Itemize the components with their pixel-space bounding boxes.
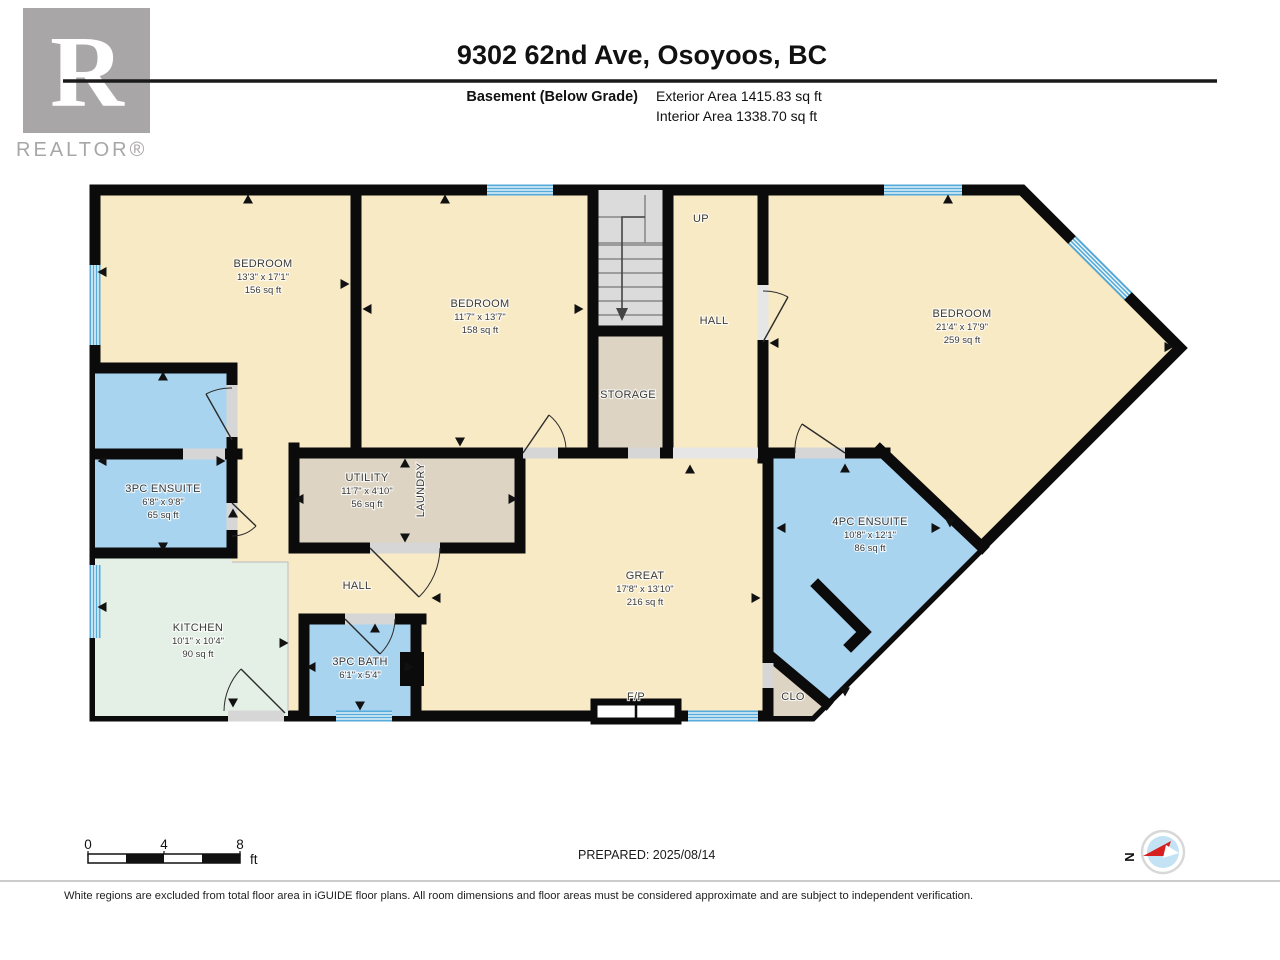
interior-area: Interior Area 1338.70 sq ft — [656, 108, 817, 124]
exterior-area: Exterior Area 1415.83 sq ft — [656, 88, 822, 104]
header: R REALTOR® 9302 62nd Ave, Osoyoos, BC Ba… — [16, 8, 1217, 161]
plan: BEDROOM 13'3" x 17'1" 156 sq ft BEDROOM … — [92, 187, 1180, 722]
closet-door-sill — [763, 663, 774, 688]
page-title: 9302 62nd Ave, Osoyoos, BC — [457, 40, 827, 70]
room-label-laundry: LAUNDRY — [415, 462, 427, 517]
door-sill — [795, 448, 845, 459]
svg-text:10'1" x 10'4": 10'1" x 10'4" — [172, 636, 224, 647]
door-sill — [523, 448, 558, 459]
svg-text:BEDROOM: BEDROOM — [234, 258, 293, 270]
ensuite-upper-room-fill — [95, 368, 232, 454]
svg-text:BEDROOM: BEDROOM — [933, 308, 992, 320]
bath-wall-notch — [400, 652, 424, 686]
scale-bar: 0 4 8 ft — [84, 837, 258, 867]
svg-text:156 sq ft: 156 sq ft — [245, 285, 282, 296]
svg-text:158 sq ft: 158 sq ft — [462, 325, 499, 336]
svg-text:KITCHEN: KITCHEN — [173, 622, 223, 634]
compass-north-label: N — [1122, 852, 1137, 861]
scale-bar-segment — [202, 854, 240, 863]
scale-unit: ft — [250, 852, 258, 867]
compass: N — [1122, 831, 1184, 873]
svg-text:90 sq ft: 90 sq ft — [182, 649, 214, 660]
svg-text:GREAT: GREAT — [626, 570, 665, 582]
svg-text:86 sq ft: 86 sq ft — [854, 543, 886, 554]
door-sill — [227, 385, 238, 437]
scale-tick-0: 0 — [84, 837, 92, 852]
room-label-hall-upper: HALL — [700, 315, 729, 327]
room-label-closet: CLO — [781, 691, 805, 703]
scale-tick-4: 4 — [160, 837, 168, 852]
floor-plan-canvas: R REALTOR® 9302 62nd Ave, Osoyoos, BC Ba… — [0, 0, 1280, 960]
svg-text:11'7" x 4'10": 11'7" x 4'10" — [341, 486, 392, 497]
room-label-hall-lower: HALL — [343, 580, 372, 592]
svg-text:56 sq ft: 56 sq ft — [351, 499, 383, 510]
svg-text:10'8" x 12'1": 10'8" x 12'1" — [844, 530, 896, 541]
svg-text:3PC BATH: 3PC BATH — [332, 656, 387, 668]
room-label-storage: STORAGE — [600, 389, 656, 401]
realtor-wordmark: REALTOR® — [16, 139, 147, 161]
floor-label: Basement (Below Grade) — [466, 89, 638, 105]
svg-text:13'3" x 17'1": 13'3" x 17'1" — [237, 272, 289, 283]
hall-opening-threshold — [673, 448, 758, 459]
fireplace — [594, 702, 678, 721]
room-label-up: UP — [693, 213, 709, 225]
scale-bar-segment — [126, 854, 164, 863]
prepared-date: PREPARED: 2025/08/14 — [578, 848, 715, 862]
footer: 0 4 8 ft PREPARED: 2025/08/14 N White re… — [0, 831, 1280, 902]
door-sill — [228, 711, 284, 722]
svg-text:UTILITY: UTILITY — [345, 472, 388, 484]
room-label-fireplace: F/P — [627, 691, 645, 703]
stairwell-fill — [593, 190, 668, 331]
svg-text:21'4" x 17'9": 21'4" x 17'9" — [936, 322, 988, 333]
svg-text:3PC ENSUITE: 3PC ENSUITE — [125, 483, 200, 495]
svg-text:6'8" x 9'8": 6'8" x 9'8" — [142, 497, 184, 508]
svg-text:11'7" x 13'7": 11'7" x 13'7" — [454, 312, 505, 323]
svg-text:65 sq ft: 65 sq ft — [147, 510, 179, 521]
svg-text:17'8" x 13'10": 17'8" x 13'10" — [616, 584, 673, 595]
svg-text:4PC ENSUITE: 4PC ENSUITE — [832, 516, 907, 528]
realtor-logo-letter: R — [50, 16, 125, 129]
scale-tick-8: 8 — [236, 837, 244, 852]
door-sill — [370, 543, 440, 554]
door-sill — [345, 614, 395, 625]
kitchen-fill — [95, 553, 288, 716]
door-sill — [758, 285, 769, 340]
svg-text:216 sq ft: 216 sq ft — [627, 597, 664, 608]
svg-text:259 sq ft: 259 sq ft — [944, 335, 981, 346]
disclaimer-text: White regions are excluded from total fl… — [64, 890, 973, 902]
svg-text:6'1" x 5'4": 6'1" x 5'4" — [339, 670, 381, 681]
svg-text:BEDROOM: BEDROOM — [451, 298, 510, 310]
door-sill — [628, 448, 660, 459]
floor-plan-page: R REALTOR® 9302 62nd Ave, Osoyoos, BC Ba… — [0, 0, 1280, 960]
